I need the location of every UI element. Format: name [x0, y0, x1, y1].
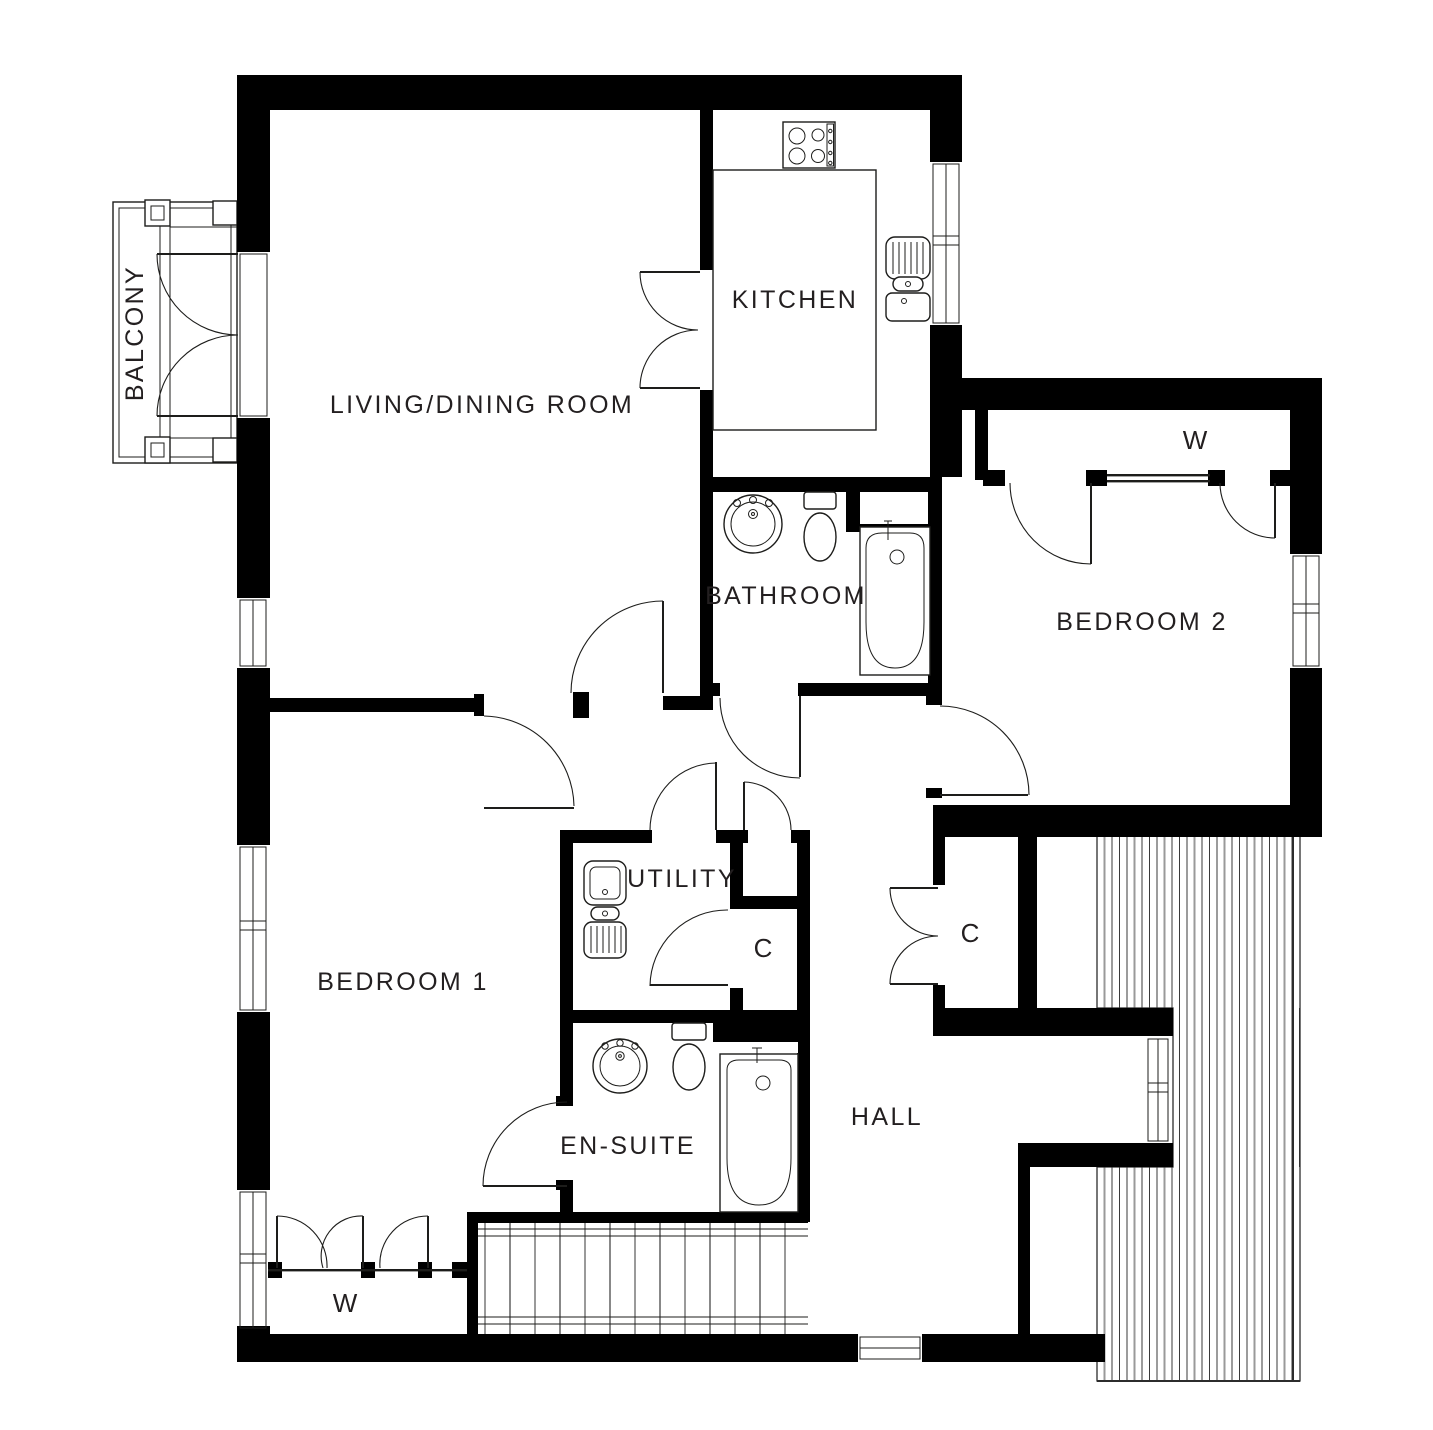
- window-bedroom1-a: [240, 847, 266, 1010]
- window-kitchen: [933, 164, 959, 323]
- bathroom-bathtub-icon: [860, 521, 930, 675]
- utility-closet-side-door: [650, 910, 728, 986]
- utility-sink-icon: [584, 861, 626, 958]
- living-dining-label: LIVING/DINING ROOM: [330, 391, 634, 419]
- bedroom2-wardrobe-doors: [1010, 483, 1275, 564]
- window-bedroom2: [1293, 556, 1319, 666]
- utility-label: UTILITY: [627, 865, 737, 893]
- balcony-french-doors: [157, 254, 267, 416]
- bedroom2-wardrobe-label: W: [1183, 425, 1210, 455]
- hall-label: HALL: [851, 1103, 923, 1131]
- bathroom-door: [720, 696, 800, 778]
- ensuite-label: EN-SUITE: [560, 1132, 696, 1160]
- kitchen-double-doors: [640, 272, 700, 388]
- bedroom1-wardrobe-doors: [277, 1216, 428, 1268]
- bathroom-basin-icon: [724, 495, 782, 553]
- window-hall-bottom: [860, 1337, 920, 1359]
- ensuite-basin-icon: [593, 1039, 647, 1093]
- deck-strip: [478, 1223, 808, 1334]
- window-living-room: [240, 600, 266, 666]
- window-bedroom1-b: [240, 1192, 266, 1328]
- bedroom1-wardrobe-label: W: [333, 1288, 360, 1318]
- utility-door: [650, 762, 716, 830]
- closet-hall-doors: [890, 888, 938, 984]
- kitchen-sink-icon: [886, 237, 930, 321]
- bedroom2-door: [940, 706, 1029, 795]
- closet-utility-label: C: [754, 933, 775, 963]
- bedroom1-label: BEDROOM 1: [317, 968, 489, 996]
- bathroom-label: BATHROOM: [705, 582, 867, 610]
- bedroom2-label: BEDROOM 2: [1056, 608, 1228, 636]
- ensuite-bathtub-icon: [720, 1042, 798, 1212]
- closet-hall-label: C: [961, 918, 982, 948]
- floor-plan-page: BALCONY LIVING/DINING ROOM KITCHEN BATHR…: [0, 0, 1433, 1430]
- bathroom-toilet-icon: [804, 492, 836, 561]
- balcony-label: BALCONY: [121, 265, 149, 401]
- window-entrance-bay: [1148, 1039, 1168, 1141]
- bedroom1-door: [484, 716, 574, 808]
- closet-utility-door: [744, 782, 791, 830]
- deck-terrace: [1097, 837, 1300, 1382]
- ensuite-door: [483, 1102, 567, 1186]
- living-room-door: [571, 601, 663, 693]
- hob-icon: [783, 122, 835, 168]
- ensuite-toilet-icon: [672, 1023, 706, 1090]
- kitchen-label: KITCHEN: [732, 286, 859, 314]
- floor-plan: BALCONY LIVING/DINING ROOM KITCHEN BATHR…: [0, 0, 1433, 1430]
